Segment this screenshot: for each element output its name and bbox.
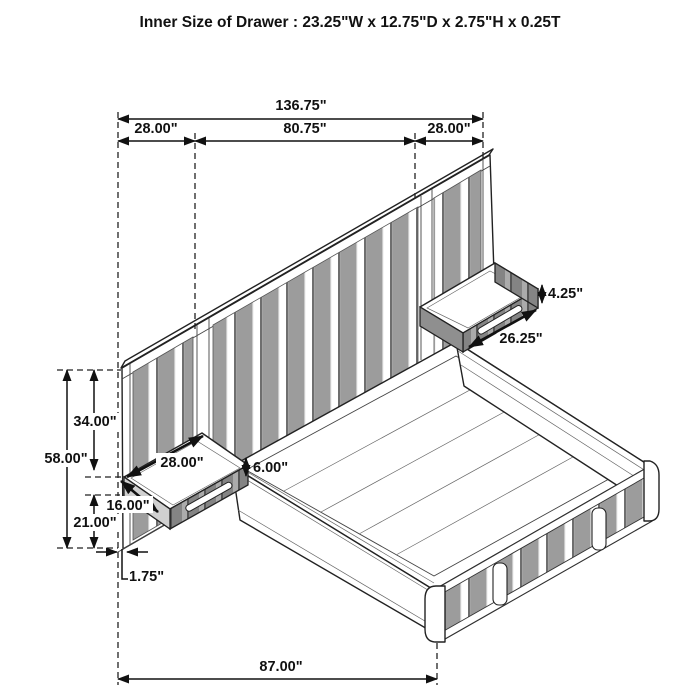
dim-section-left-label: 28.00" — [134, 121, 177, 137]
dim-lower-height-label: 21.00" — [73, 515, 116, 531]
foot-left-corner-post — [425, 586, 445, 642]
dim-thickness-label: 1.75" — [129, 569, 164, 585]
dim-bed-length-label: 87.00" — [259, 659, 302, 675]
diagram-title: Inner Size of Drawer : 23.25"W x 12.75"D… — [140, 14, 561, 31]
dim-nightstand-width-label: 28.00" — [160, 455, 203, 471]
dim-section-middle-label: 80.75" — [283, 121, 326, 137]
dim-shelf-front-label: 26.25" — [499, 331, 542, 347]
dim-nightstand-depth-label: 16.00" — [106, 498, 149, 514]
diagram-canvas: 136.75" 28.00" 80.75" 28.00" 58.00" 34.0… — [0, 0, 700, 700]
dim-section-right-label: 28.00" — [427, 121, 470, 137]
foot-drawer-handle-slot — [493, 563, 507, 605]
foot-drawer-handle-slot — [592, 508, 606, 550]
foot-right-corner-post — [644, 461, 659, 521]
bed-dimension-diagram: 136.75" 28.00" 80.75" 28.00" 58.00" 34.0… — [0, 0, 700, 700]
dim-total-height-label: 58.00" — [44, 451, 87, 467]
dim-total-width-label: 136.75" — [275, 98, 326, 114]
dim-upper-height-label: 34.00" — [73, 414, 116, 430]
dim-shelf-height-label: 4.25" — [548, 286, 583, 302]
dim-rail-height-label: 6.00" — [253, 460, 288, 476]
